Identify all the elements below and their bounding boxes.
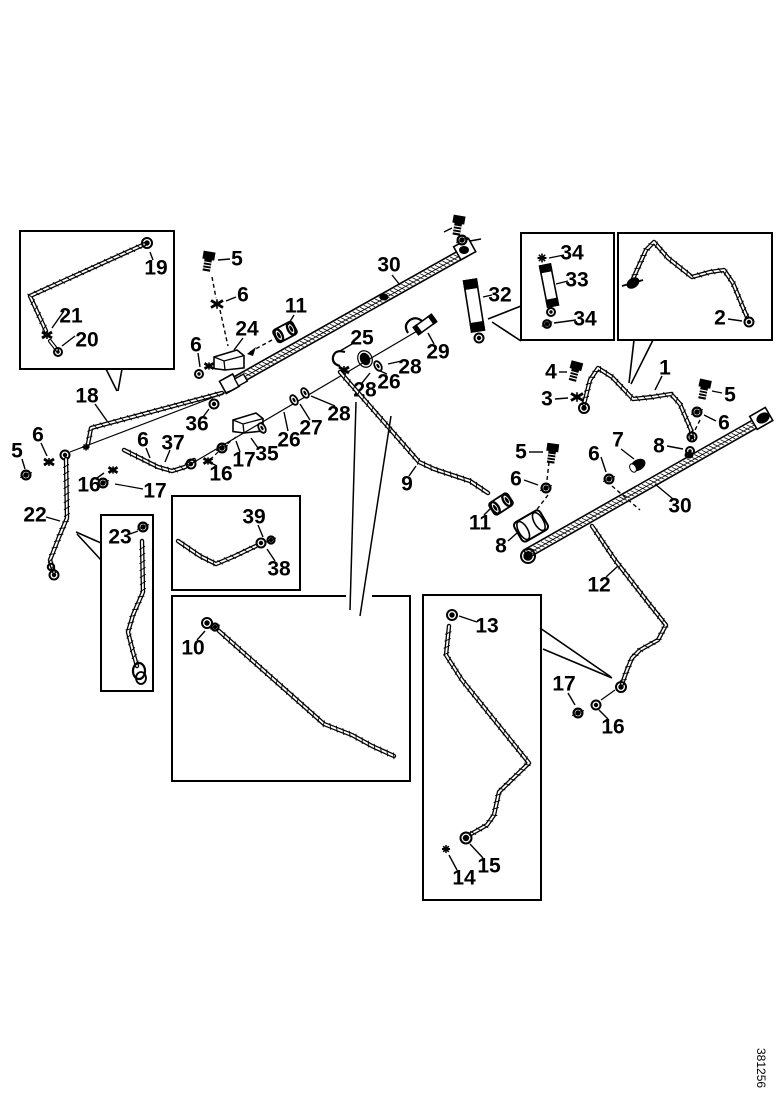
svg-text:34: 34: [573, 308, 597, 331]
svg-text:28: 28: [398, 356, 422, 379]
svg-text:26: 26: [377, 371, 400, 394]
svg-text:21: 21: [59, 305, 83, 328]
svg-text:39: 39: [242, 506, 265, 529]
svg-text:1: 1: [659, 357, 671, 380]
svg-text:16: 16: [601, 716, 624, 739]
svg-text:37: 37: [161, 432, 184, 455]
svg-text:11: 11: [285, 295, 308, 318]
svg-text:5: 5: [231, 248, 243, 271]
svg-text:29: 29: [426, 341, 449, 364]
svg-text:11: 11: [469, 512, 492, 535]
svg-text:23: 23: [108, 526, 131, 549]
svg-text:2: 2: [714, 307, 726, 330]
svg-text:9: 9: [401, 473, 413, 496]
svg-text:6: 6: [237, 284, 249, 307]
svg-text:38: 38: [267, 558, 291, 581]
svg-text:5: 5: [515, 441, 527, 464]
svg-text:3: 3: [541, 388, 553, 411]
svg-text:35: 35: [255, 443, 279, 466]
svg-text:6: 6: [137, 429, 149, 452]
svg-text:14: 14: [452, 867, 476, 890]
svg-text:24: 24: [235, 318, 259, 341]
svg-text:16: 16: [77, 474, 100, 497]
svg-text:30: 30: [377, 254, 400, 277]
svg-text:6: 6: [32, 424, 44, 447]
svg-text:22: 22: [23, 504, 46, 527]
svg-text:20: 20: [75, 329, 98, 352]
svg-text:33: 33: [565, 269, 588, 292]
svg-text:16: 16: [209, 463, 232, 486]
svg-text:4: 4: [545, 361, 557, 384]
svg-text:6: 6: [588, 443, 600, 466]
svg-text:8: 8: [653, 435, 665, 458]
svg-text:17: 17: [232, 449, 255, 472]
svg-text:17: 17: [552, 673, 575, 696]
svg-text:5: 5: [11, 440, 23, 463]
svg-text:28: 28: [327, 403, 351, 426]
svg-text:15: 15: [477, 855, 501, 878]
svg-text:26: 26: [277, 429, 300, 452]
svg-text:7: 7: [612, 429, 624, 452]
svg-text:5: 5: [724, 384, 736, 407]
svg-text:36: 36: [185, 413, 208, 436]
svg-text:6: 6: [718, 412, 730, 435]
svg-text:8: 8: [495, 535, 507, 558]
svg-text:19: 19: [144, 257, 167, 280]
svg-text:6: 6: [510, 468, 522, 491]
svg-text:12: 12: [587, 574, 610, 597]
svg-text:25: 25: [350, 327, 374, 350]
svg-text:17: 17: [143, 480, 166, 503]
svg-text:27: 27: [299, 417, 322, 440]
svg-text:13: 13: [475, 615, 498, 638]
svg-text:6: 6: [190, 334, 202, 357]
svg-text:10: 10: [181, 637, 204, 660]
svg-text:381256: 381256: [754, 1048, 768, 1088]
svg-text:34: 34: [560, 242, 584, 265]
